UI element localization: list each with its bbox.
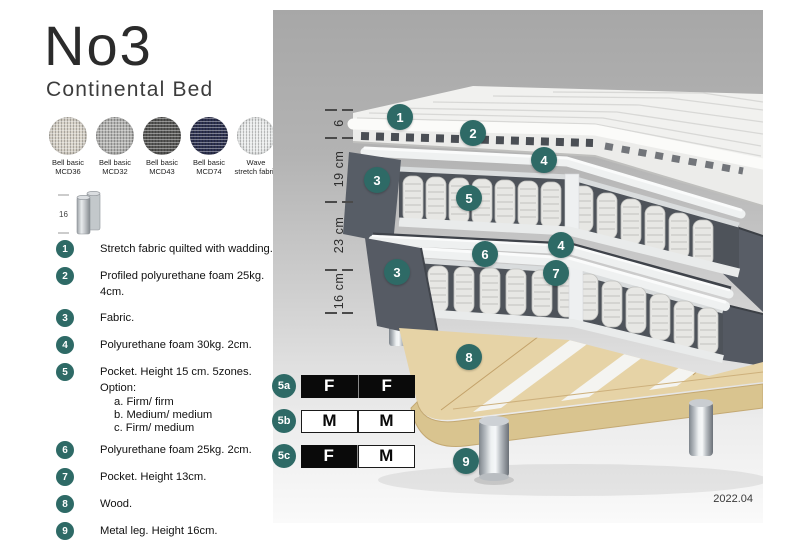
leg-height-value: 16 (59, 210, 68, 219)
product-subtitle: Continental Bed (46, 78, 213, 102)
swatch-label: Bell basic MCD36 (52, 159, 84, 176)
fabric-swatch-circle (190, 117, 228, 155)
firmness-label-5a: 5a (272, 374, 296, 398)
firmness-table: 5a F F 5b M M 5c F M (272, 374, 415, 479)
revision-date: 2022.04 (713, 493, 753, 505)
legend-item-2: 2 Profiled polyurethane foam 25kg. 4cm. (56, 267, 276, 300)
legend-item-7: 7 Pocket. Height 13cm. (56, 468, 276, 486)
marker-9: 9 (453, 448, 479, 474)
measure-upper-box: 19 cm (329, 139, 349, 199)
firmness-bar-5b: M M (301, 410, 415, 433)
legend-badge-5: 5 (56, 363, 74, 381)
swatch-mcd32: Bell basic MCD32 (93, 117, 137, 176)
marker-1: 1 (387, 104, 413, 130)
swatch-mcd36: Bell basic MCD36 (46, 117, 90, 176)
swatch-label: Bell basic MCD74 (193, 159, 225, 176)
legend-item-6: 6 Polyurethane foam 25kg. 2cm. (56, 441, 276, 459)
marker-4: 4 (531, 147, 557, 173)
leg-height-icon: 16 (54, 186, 116, 245)
firmness-bar-5c: F M (301, 445, 415, 468)
legend-badge-8: 8 (56, 495, 74, 513)
legend-badge-3: 3 (56, 309, 74, 327)
leg-dimension-drawing: 16 (54, 186, 116, 240)
marker-6: 6 (472, 241, 498, 267)
swatch-label: Wave stretch fabric (235, 159, 278, 176)
measure-leg: 16 cm (329, 261, 349, 321)
marker-3: 3 (364, 167, 390, 193)
swatch-wave: Wave stretch fabric (234, 117, 278, 176)
fabric-swatch-circle (143, 117, 181, 155)
title-block: No3 Continental Bed (44, 16, 213, 102)
marker-7: 7 (543, 260, 569, 286)
legend-badge-1: 1 (56, 240, 74, 258)
swatch-mcd74: Bell basic MCD74 (187, 117, 231, 176)
firmness-label-5b: 5b (272, 409, 296, 433)
swatch-label: Bell basic MCD32 (99, 159, 131, 176)
legend-item-3: 3 Fabric. (56, 309, 276, 327)
fabric-swatches: Bell basic MCD36 Bell basic MCD32 Bell b… (46, 117, 278, 176)
legend: 1 Stretch fabric quilted with wadding. 2… (56, 240, 276, 549)
legend-item-9: 9 Metal leg. Height 16cm. (56, 522, 276, 540)
swatch-label: Bell basic MCD43 (146, 159, 178, 176)
spec-sheet: { "product": { "name": "No3", "subtitle"… (0, 0, 800, 533)
product-name: No3 (44, 16, 213, 76)
firmness-row-5b: 5b M M (272, 409, 415, 433)
legend-badge-7: 7 (56, 468, 74, 486)
legend-item-8: 8 Wood. (56, 495, 276, 513)
legend-item-5: 5 Pocket. Height 15 cm. 5zones. Option: … (56, 363, 276, 435)
marker-5: 5 (456, 185, 482, 211)
legend-badge-6: 6 (56, 441, 74, 459)
firmness-row-5a: 5a F F (272, 374, 415, 398)
fabric-swatch-circle (49, 117, 87, 155)
legend-item-1: 1 Stretch fabric quilted with wadding. (56, 240, 276, 258)
firmness-label-5c: 5c (272, 444, 296, 468)
legend-item-4: 4 Polyurethane foam 30kg. 2cm. (56, 336, 276, 354)
pocket-options: a. Firm/ firm b. Medium/ medium c. Firm/… (114, 396, 276, 435)
fabric-swatch-circle (237, 117, 275, 155)
marker-2: 2 (460, 120, 486, 146)
legend-badge-9: 9 (56, 522, 74, 540)
firmness-bar-5a: F F (301, 375, 415, 398)
marker-4b: 4 (548, 232, 574, 258)
legend-badge-2: 2 (56, 267, 74, 285)
ruler-tick (325, 201, 353, 203)
marker-8: 8 (456, 344, 482, 370)
measure-lower-box: 23 cm (329, 205, 349, 265)
legend-badge-4: 4 (56, 336, 74, 354)
fabric-swatch-circle (96, 117, 134, 155)
swatch-mcd43: Bell basic MCD43 (140, 117, 184, 176)
marker-3b: 3 (384, 259, 410, 285)
firmness-row-5c: 5c F M (272, 444, 415, 468)
